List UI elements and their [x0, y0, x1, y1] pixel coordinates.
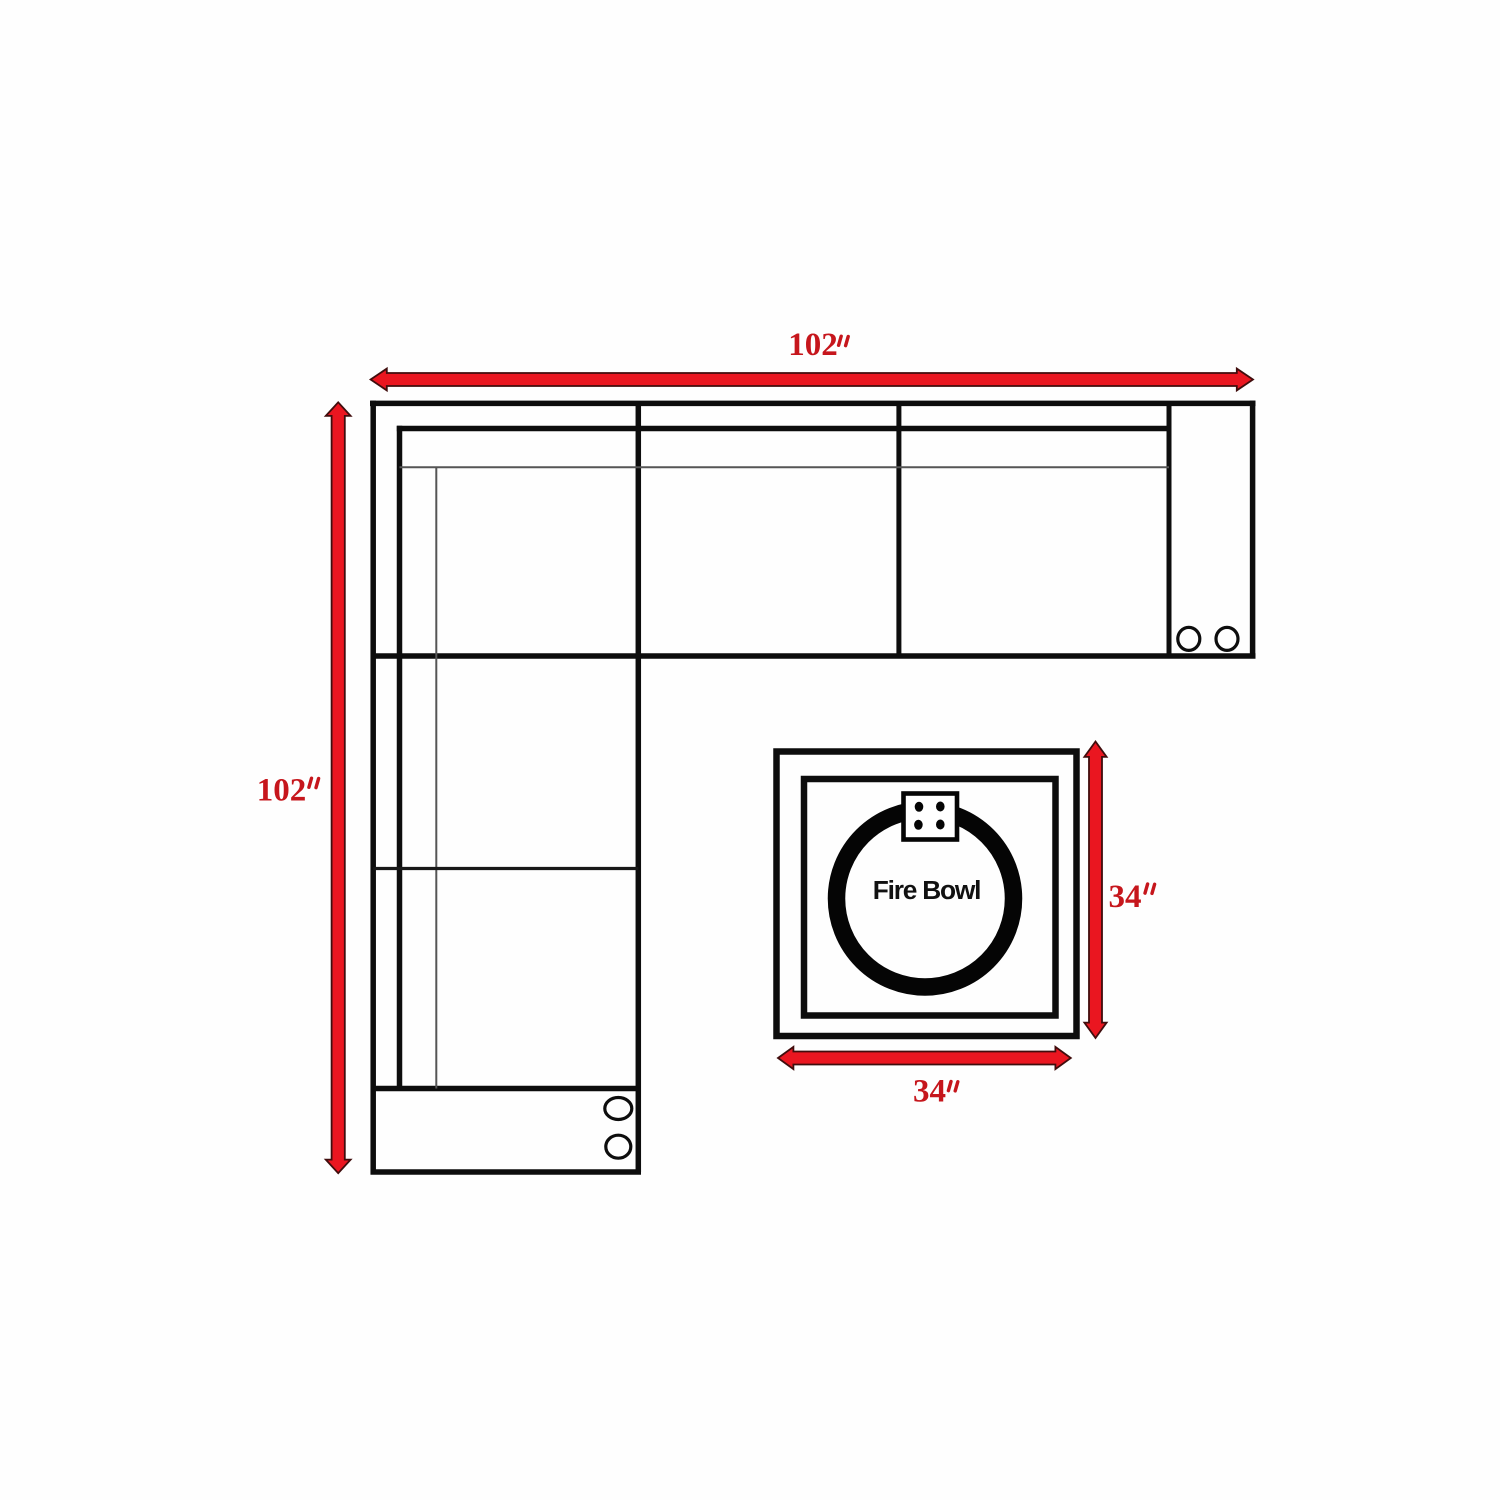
svg-text:34: 34 [1109, 879, 1142, 915]
svg-text:102: 102 [257, 773, 307, 809]
svg-text:34: 34 [913, 1074, 946, 1110]
svg-text:Fire Bowl: Fire Bowl [873, 875, 981, 905]
svg-text:102: 102 [788, 327, 838, 363]
